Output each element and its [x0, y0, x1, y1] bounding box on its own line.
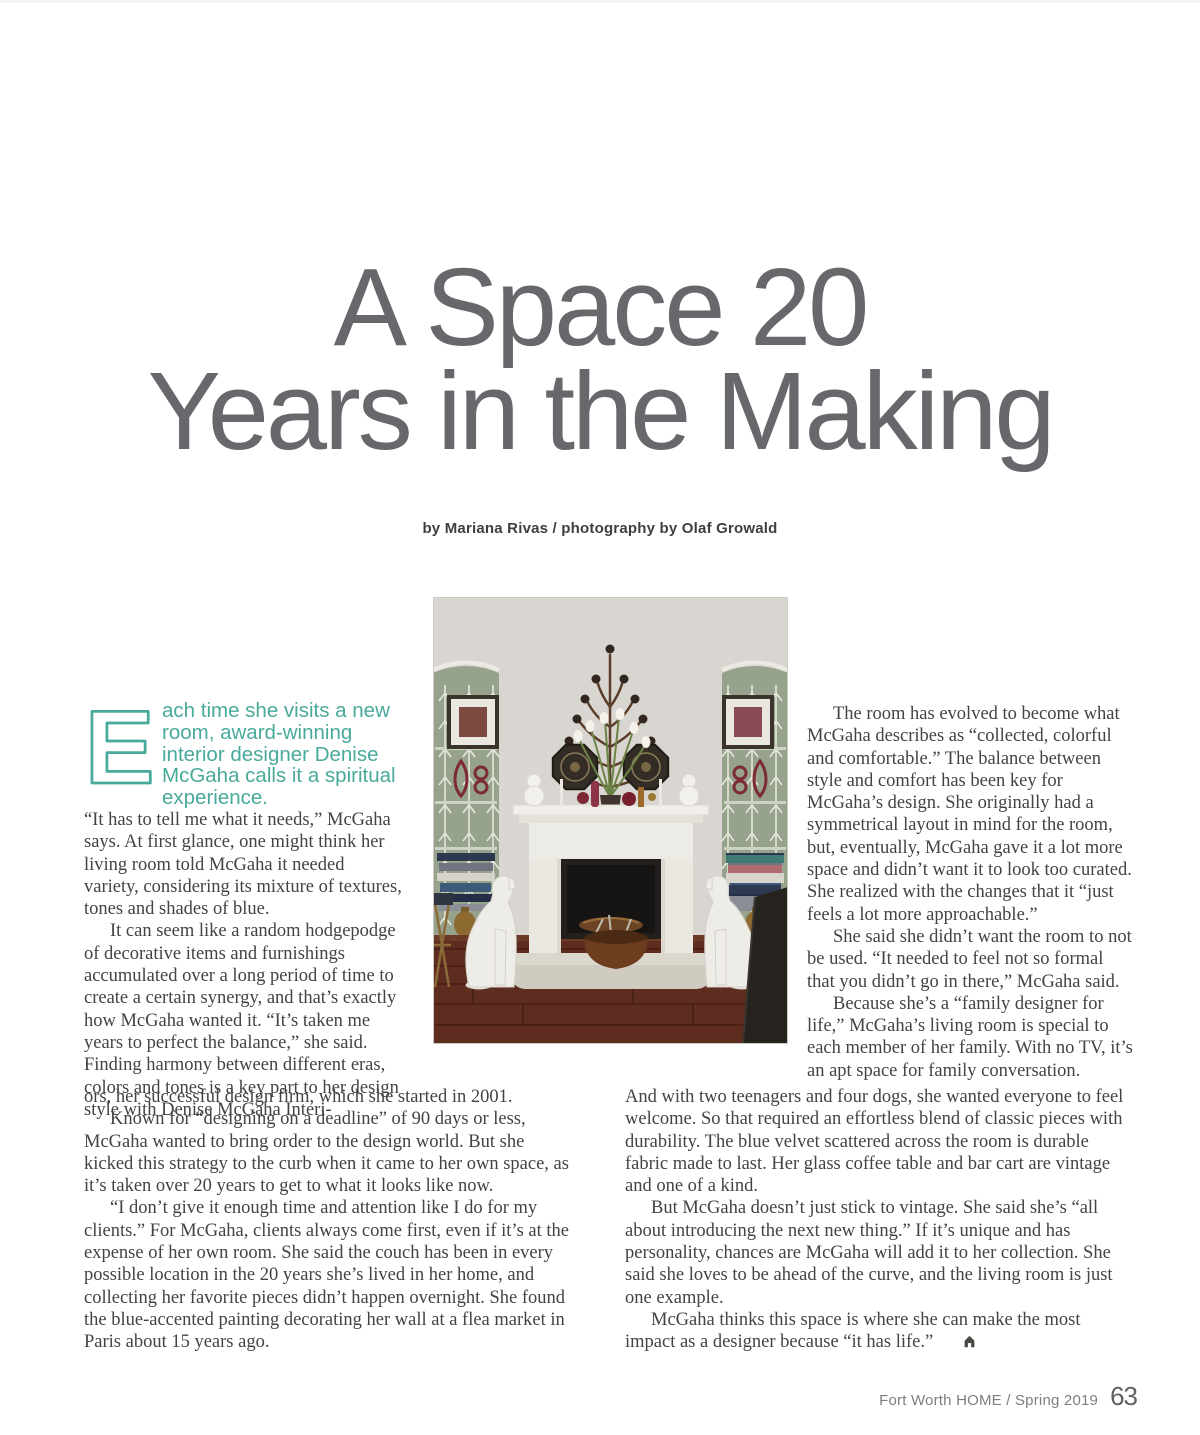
page-top-edge: [0, 0, 1200, 3]
byline: by Mariana Rivas / photography by Olaf G…: [0, 520, 1200, 537]
left-column: E ach time she visits a new room, award-…: [84, 700, 402, 1121]
paragraph: But McGaha doesn’t just stick to vintage…: [625, 1197, 1125, 1308]
intro-paragraph: E ach time she visits a new room, award-…: [84, 700, 402, 809]
paragraph: “I don’t give it enough time and attenti…: [84, 1197, 576, 1353]
intro-lead-text: ach time she visits a new room, award-wi…: [162, 699, 396, 809]
page-title: A Space 20 Years in the Making: [0, 256, 1200, 464]
magazine-page: A Space 20 Years in the Making by Marian…: [0, 0, 1200, 1435]
page-number: 63: [1110, 1381, 1137, 1412]
paragraph: Known for “designing on a deadline” of 9…: [84, 1108, 576, 1197]
right-column: The room has evolved to become what McGa…: [807, 703, 1133, 1082]
paragraph: McGaha thinks this space is where she ca…: [625, 1309, 1125, 1355]
paragraph: The room has evolved to become what McGa…: [807, 703, 1133, 926]
paragraph: She said she didn’t want the room to not…: [807, 926, 1133, 993]
paragraph: Because she’s a “family designer for lif…: [807, 993, 1133, 1082]
house-end-icon: [937, 1332, 976, 1354]
title-line-2: Years in the Making: [0, 360, 1200, 464]
drop-cap: E: [84, 704, 152, 788]
paragraph: And with two teenagers and four dogs, sh…: [625, 1086, 1125, 1197]
title-line-1: A Space 20: [0, 256, 1200, 360]
paragraph: “It has to tell me what it needs,” McGah…: [84, 809, 402, 920]
living-room-photo: [433, 597, 788, 1044]
page-footer: Fort Worth HOME / Spring 2019 63: [879, 1381, 1137, 1412]
left-wide-block: ors, her successful design firm, which s…: [84, 1086, 576, 1354]
living-room-photo-art: [433, 597, 788, 1044]
paragraph: ors, her successful design firm, which s…: [84, 1086, 576, 1108]
right-wide-block: And with two teenagers and four dogs, sh…: [625, 1086, 1125, 1355]
svg-text:E: E: [85, 704, 152, 788]
publication-name: Fort Worth HOME / Spring 2019: [879, 1392, 1098, 1409]
